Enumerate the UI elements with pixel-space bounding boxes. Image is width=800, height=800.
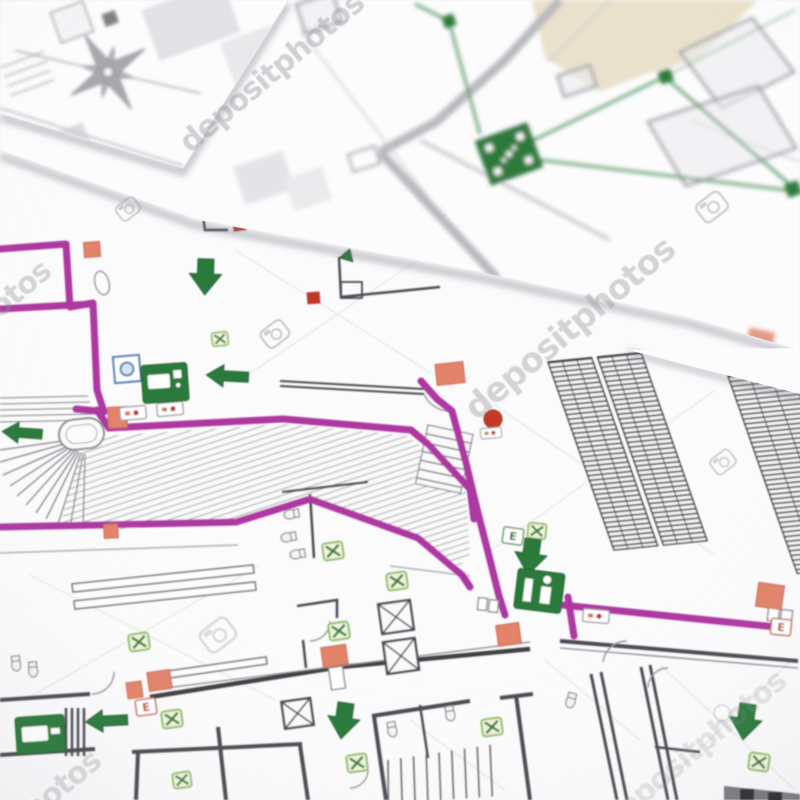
blueprint-photo-canvas: E E E [0,0,800,800]
photo-of-blueprints: E E E [0,0,800,800]
vignette-overlay [0,0,800,800]
